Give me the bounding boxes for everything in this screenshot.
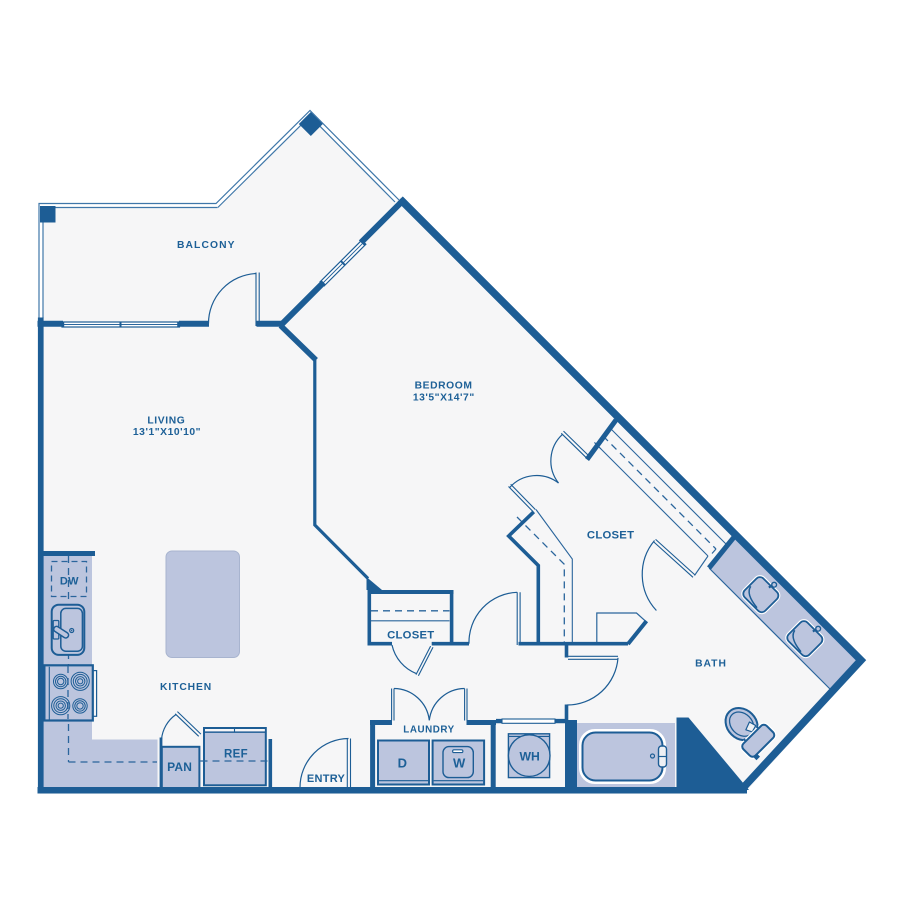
svg-text:D: D	[398, 755, 407, 770]
svg-text:W: W	[453, 755, 466, 770]
svg-text:LIVING: LIVING	[147, 415, 185, 426]
svg-text:13'5"X14'7": 13'5"X14'7"	[413, 393, 475, 404]
svg-text:CLOSET: CLOSET	[587, 530, 634, 542]
svg-text:LAUNDRY: LAUNDRY	[403, 724, 454, 735]
svg-text:BALCONY: BALCONY	[177, 240, 236, 251]
svg-text:KITCHEN: KITCHEN	[160, 682, 212, 693]
svg-text:CLOSET: CLOSET	[387, 629, 434, 641]
svg-text:REF: REF	[224, 749, 248, 761]
svg-text:WH: WH	[519, 749, 539, 763]
svg-text:DW: DW	[60, 575, 79, 587]
svg-text:ENTRY: ENTRY	[307, 773, 346, 785]
svg-text:BATH: BATH	[695, 658, 727, 669]
svg-text:13'1"X10'10": 13'1"X10'10"	[133, 427, 201, 438]
svg-text:BEDROOM: BEDROOM	[415, 381, 473, 392]
svg-text:PAN: PAN	[167, 760, 192, 774]
